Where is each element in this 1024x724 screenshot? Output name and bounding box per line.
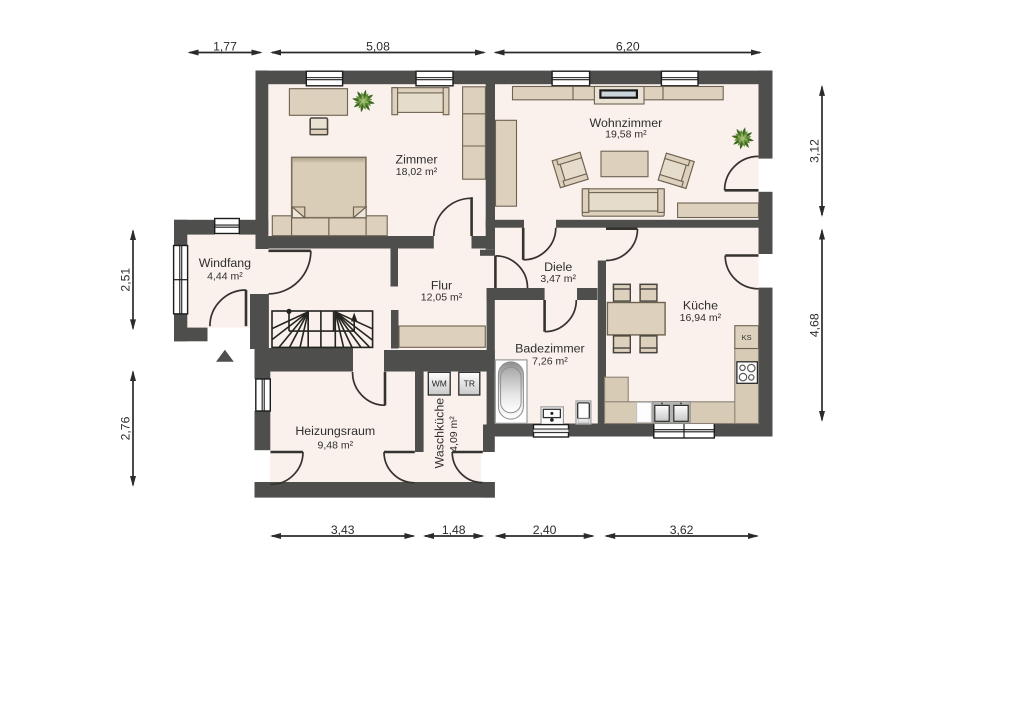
svg-text:12,05 m²: 12,05 m² bbox=[421, 291, 463, 303]
svg-text:9,48 m²: 9,48 m² bbox=[317, 440, 353, 452]
svg-text:WM: WM bbox=[432, 379, 447, 389]
svg-text:3,43: 3,43 bbox=[331, 523, 355, 537]
svg-text:2,51: 2,51 bbox=[119, 268, 133, 292]
svg-text:5,08: 5,08 bbox=[366, 39, 390, 53]
svg-text:7,26 m²: 7,26 m² bbox=[532, 355, 568, 367]
svg-text:19,58 m²: 19,58 m² bbox=[605, 129, 647, 141]
svg-text:6,20: 6,20 bbox=[616, 39, 640, 53]
svg-text:KS: KS bbox=[742, 333, 752, 342]
svg-text:3,62: 3,62 bbox=[670, 523, 694, 537]
svg-text:Zimmer: Zimmer bbox=[396, 152, 438, 166]
svg-text:3,12: 3,12 bbox=[808, 139, 822, 163]
svg-text:2,40: 2,40 bbox=[533, 523, 557, 537]
svg-text:Küche: Küche bbox=[683, 299, 718, 313]
svg-text:2,76: 2,76 bbox=[119, 416, 133, 440]
svg-text:1,48: 1,48 bbox=[442, 523, 466, 537]
svg-text:4,44 m²: 4,44 m² bbox=[207, 271, 243, 283]
svg-text:4,68: 4,68 bbox=[808, 313, 822, 337]
svg-text:Waschküche: Waschküche bbox=[433, 398, 447, 469]
svg-text:Badezimmer: Badezimmer bbox=[515, 341, 585, 355]
svg-text:TR: TR bbox=[464, 379, 475, 389]
svg-text:Diele: Diele bbox=[544, 260, 572, 274]
svg-text:18,02 m²: 18,02 m² bbox=[396, 166, 438, 178]
svg-text:4,09 m²: 4,09 m² bbox=[448, 416, 460, 452]
svg-text:Wohnzimmer: Wohnzimmer bbox=[590, 116, 663, 130]
svg-text:1,77: 1,77 bbox=[213, 39, 237, 53]
svg-text:16,94 m²: 16,94 m² bbox=[680, 312, 722, 324]
svg-text:3,47 m²: 3,47 m² bbox=[540, 273, 576, 285]
svg-text:Windfang: Windfang bbox=[199, 256, 251, 270]
svg-text:Heizungsraum: Heizungsraum bbox=[295, 424, 375, 438]
